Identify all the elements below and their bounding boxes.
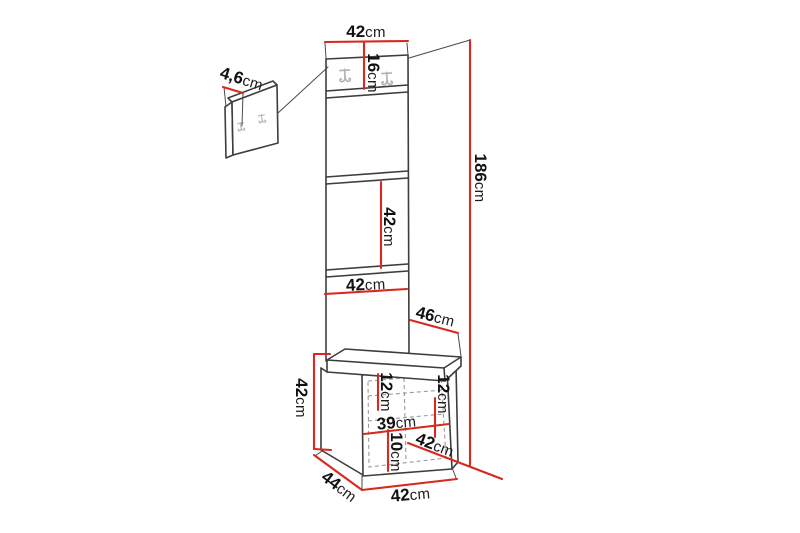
dim-bench-width: 42cm [390,483,431,505]
dim-shelf-spacing-right-unit: cm [434,393,451,414]
dim-shelf-spacing-right-value: 12 [434,374,453,393]
callout-line [278,67,328,113]
panel-seam [326,92,408,98]
dim-hook-panel-height: 16cm [364,53,383,93]
panel-seam [326,178,408,184]
dim-panel-width-lower: 42cm [345,274,385,295]
coat-hook-icon [382,72,393,85]
panel-seam [326,264,408,270]
dim-total-height-unit: cm [471,182,488,203]
ext-line [409,40,470,58]
dim-panel-section-height: 42cm [380,207,399,247]
dim-total-height: 186cm [471,154,490,203]
dim-interior-width: 39cm [376,411,417,433]
dim-shelf-spacing-right: 12cm [434,374,453,414]
dim-interior-width-value: 39 [376,413,397,434]
dim-bench-width-value: 42 [390,485,411,506]
ext-line [407,43,408,55]
panel-seam [326,171,408,177]
dim-panel-width-lower-value: 42 [345,275,365,295]
dim-shelf-spacing-left-value: 12 [377,372,396,391]
ext-line [458,334,461,356]
dim-hook-panel-height-value: 16 [364,53,383,72]
diagram-canvas: 42cm 16cm 4,6cm 186cm 42cm 42cm 46cm 42c… [0,0,800,533]
ext-line [325,43,326,58]
dim-panel-section-height-unit: cm [380,226,397,247]
dim-bench-height-unit: cm [292,397,309,418]
dim-total-height-value: 186 [471,154,490,182]
dim-panel-width-top-value: 42 [346,22,365,41]
dim-bench-width-unit: cm [409,485,431,504]
furniture-dimension-diagram: 42cm 16cm 4,6cm 186cm 42cm 42cm 46cm 42c… [0,0,800,533]
dim-bench-height: 42cm [292,378,311,418]
dim-panel-width-top: 42cm [346,22,386,41]
coat-hook-icon [340,69,351,82]
dim-bottom-clearance: 10cm [387,432,406,472]
dim-panel-width-lower-unit: cm [364,276,385,294]
dim-bottom-clearance-unit: cm [387,451,404,472]
dim-shelf-spacing-left: 12cm [377,372,396,412]
ext-line [224,87,226,107]
ext-line [453,470,456,478]
dim-tick [314,449,331,450]
dim-bottom-clearance-value: 10 [387,432,406,451]
panel-right-edge [408,55,409,353]
dim-panel-section-height-value: 42 [380,207,399,226]
dim-line-top-width [325,41,408,42]
dim-panel-width-top-unit: cm [365,24,386,41]
dim-wall-panel-thickness: 4,6cm [218,63,266,94]
dim-hook-panel-height-unit: cm [364,72,381,93]
box-top-left-edge [321,368,327,372]
dim-bench-height-value: 42 [292,378,311,397]
dim-interior-width-unit: cm [395,413,417,432]
dim-shelf-spacing-left-unit: cm [377,391,394,412]
